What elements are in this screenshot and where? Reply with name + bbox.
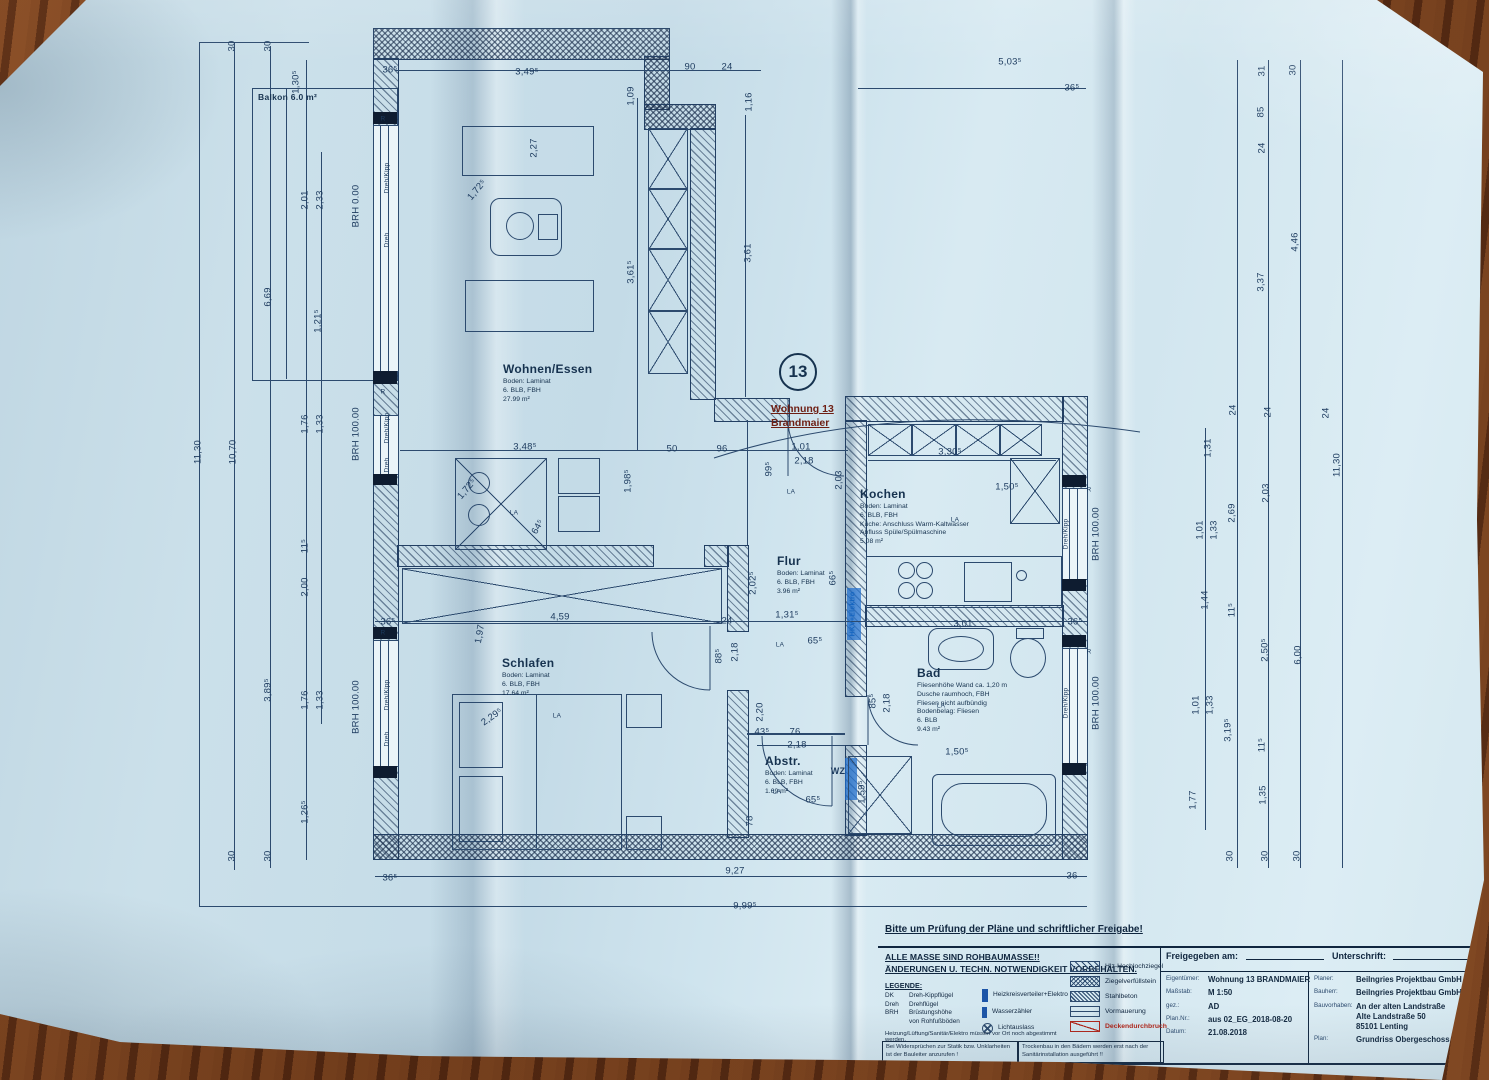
dimension-label: 1,01 bbox=[1195, 520, 1206, 539]
legend-abbr-row: BRHBrüstungshöhe von Rohfußböden bbox=[885, 1009, 960, 1026]
dimension-label: 85 bbox=[1256, 107, 1267, 118]
dimension-label: BRH 100.00 bbox=[1091, 507, 1102, 561]
legend-abbr-key: DK bbox=[885, 992, 909, 1001]
title-info-value: Beilngries Projektbau GmbH bbox=[1356, 988, 1462, 998]
room-name: Abstr. bbox=[765, 754, 813, 768]
dimension-label: 3,48⁵ bbox=[513, 442, 536, 453]
title-info-key: Eigentümer: bbox=[1166, 975, 1208, 985]
dimension-label: BRH 100.00 bbox=[351, 680, 362, 734]
dimension-label: 43⁵ bbox=[754, 727, 769, 738]
legend-hatch-label: Deckendurchbruch bbox=[1105, 1023, 1167, 1030]
dimension-label: 3,61⁵ bbox=[626, 260, 637, 283]
trockenbau-note: Trockenbau in den Bädern werden erst nac… bbox=[1018, 1041, 1164, 1063]
dimension-label: Dreh/Kipp bbox=[384, 413, 391, 444]
dimension-label: 11⁵ bbox=[300, 539, 311, 553]
legend-hatch-row: Deckendurchbruch bbox=[1070, 1021, 1167, 1032]
dimension-label: 36 bbox=[1067, 871, 1078, 882]
dimension-line bbox=[868, 460, 1056, 461]
dimension-label: 3,89⁵ bbox=[263, 678, 274, 701]
dimension-label: R bbox=[1087, 649, 1092, 656]
dimension-label: 3,61 bbox=[743, 243, 754, 262]
unterschrift-label: Unterschrift: bbox=[1332, 951, 1386, 961]
unit-label: Wohnung 13 Brandmaier bbox=[771, 402, 834, 430]
dimension-label: 30 bbox=[1292, 851, 1303, 862]
legend-title: LEGENDE: bbox=[885, 981, 922, 990]
title-info-value: 21.08.2018 bbox=[1208, 1028, 1247, 1038]
dimension-label: 1,01 bbox=[791, 442, 810, 453]
title-info-row: Bauvorhaben:An der alten Landstraße Alte… bbox=[1314, 1002, 1462, 1032]
title-info-right: Planer:Beilngries Projektbau GmbHBauherr… bbox=[1314, 975, 1462, 1049]
dimension-label: 2,20 bbox=[755, 702, 766, 721]
dimension-label: Dreh bbox=[384, 233, 391, 248]
dimension-label: 30 bbox=[1225, 851, 1236, 862]
dimension-label: 1,33 bbox=[1209, 520, 1220, 539]
dimension-label: 4,46 bbox=[1290, 232, 1301, 251]
legend-symbol-row: Wasserzähler bbox=[982, 1007, 1068, 1018]
dimension-label: 1,76 bbox=[300, 414, 311, 433]
freigegeben-label: Freigegeben am: bbox=[1166, 951, 1238, 961]
room-info: Boden: Laminat 6. BLB, FBH 27.99 m² bbox=[503, 378, 592, 404]
dimension-label: 2,69 bbox=[1227, 503, 1238, 522]
dimension-label: 1,33 bbox=[315, 690, 326, 709]
dimension-line bbox=[400, 450, 848, 451]
dimension-label: 1,26⁵ bbox=[300, 800, 311, 823]
room-name: Kochen bbox=[860, 487, 969, 501]
legend-abbr-key: BRH bbox=[885, 1009, 909, 1018]
title-info-row: Planer:Beilngries Projektbau GmbH bbox=[1314, 975, 1462, 985]
title-info-key: Plan: bbox=[1314, 1035, 1356, 1045]
legend-hatch-label: Vormauerung bbox=[1105, 1008, 1146, 1015]
dimension-label: 66⁵ bbox=[828, 570, 839, 585]
dimension-line bbox=[637, 98, 638, 450]
room-label: Wohnen/EssenBoden: Laminat 6. BLB, FBH 2… bbox=[503, 362, 592, 404]
dimension-line bbox=[321, 152, 322, 724]
dimension-line bbox=[199, 906, 1087, 907]
dimension-label: 2,01 bbox=[300, 190, 311, 209]
dimension-label: 24 bbox=[1228, 405, 1239, 416]
dimension-line bbox=[1237, 60, 1238, 868]
dimension-label: LA bbox=[773, 789, 781, 796]
title-info-key: Maßstab: bbox=[1166, 988, 1208, 998]
dimension-label: 11⁵ bbox=[1257, 738, 1268, 752]
dimension-line bbox=[1300, 60, 1301, 868]
dimension-label: LA bbox=[553, 713, 561, 720]
unit-number-circle: 13 bbox=[779, 353, 817, 391]
dimension-label: 76 bbox=[790, 727, 801, 738]
room-info: Boden: Laminat 6. BLB, FBH Küche: Anschl… bbox=[860, 503, 969, 547]
legend-abbreviations: DKDreh-KippflügelDrehDrehflügelBRHBrüstu… bbox=[885, 992, 960, 1027]
dimension-label: 11⁵ bbox=[1227, 603, 1238, 617]
hatch-swatch-icon bbox=[1070, 1006, 1100, 1017]
room-name: Balkon 6.0 m² bbox=[258, 92, 317, 102]
dimension-label: Dreh/Kipp bbox=[1063, 688, 1070, 719]
dimension-label: 2,02⁵ bbox=[748, 571, 759, 594]
dimension-label: 1,01 bbox=[1191, 695, 1202, 714]
room-label: BadFliesenhöhe Wand ca. 1,20 m Dusche ra… bbox=[917, 666, 1007, 735]
legend-symbol-row: Heizkreisverteiler+Elektro bbox=[982, 989, 1068, 1002]
dimension-line bbox=[199, 42, 200, 906]
dimension-label: 1,30⁵ bbox=[291, 70, 302, 93]
title-info-row: Bauherr:Beilngries Projektbau GmbH bbox=[1314, 988, 1462, 998]
dimension-label: BRH 100.00 bbox=[351, 407, 362, 461]
dimension-label: Dreh bbox=[384, 732, 391, 747]
dimension-label: 1,09 bbox=[626, 86, 637, 105]
room-name: Wohnen/Essen bbox=[503, 362, 592, 376]
dimension-label: 36⁵ bbox=[1064, 83, 1079, 94]
legend-hatch-row: Hlz-Hochlochziegel bbox=[1070, 961, 1167, 972]
dimension-label: 1,44 bbox=[1200, 590, 1211, 609]
room-label: FlurBoden: Laminat 6. BLB, FBH 3.96 m² bbox=[777, 554, 825, 596]
title-info-value: M 1:50 bbox=[1208, 988, 1232, 998]
dimension-label: R bbox=[381, 116, 386, 123]
legend-symbol-label: Wasserzähler bbox=[992, 1008, 1032, 1017]
legend-abbr-key: Dreh bbox=[885, 1001, 909, 1010]
dimension-label: 78 bbox=[745, 816, 756, 827]
hatch-swatch-icon bbox=[1070, 991, 1100, 1002]
dimension-label: 2,03 bbox=[1261, 483, 1272, 502]
dimension-label: 24 bbox=[1263, 407, 1274, 418]
signature-line bbox=[1393, 951, 1471, 960]
dimension-label: 1,31 bbox=[1203, 438, 1214, 457]
dimension-label: 6,00 bbox=[1293, 645, 1304, 664]
dimension-label: 24 bbox=[1257, 143, 1268, 154]
room-info: Boden: Laminat 6. BLB, FBH 3.96 m² bbox=[777, 570, 825, 596]
dimension-label: BRH 100.00 bbox=[1091, 676, 1102, 730]
dimension-label: R bbox=[1087, 487, 1092, 494]
dimension-label: 50 bbox=[667, 444, 678, 455]
dimension-label: Dreh/Kipp bbox=[384, 680, 391, 711]
title-info-row: Datum:21.08.2018 bbox=[1166, 1028, 1310, 1038]
hatch-swatch-icon bbox=[1070, 1021, 1100, 1032]
dimension-label: 9,27 bbox=[725, 866, 744, 877]
dimension-label: 96 bbox=[717, 444, 728, 455]
dimension-label: 1,33 bbox=[315, 414, 326, 433]
title-info-value: Beilngries Projektbau GmbH bbox=[1356, 975, 1462, 985]
dimension-label: 9,99⁵ bbox=[733, 901, 756, 912]
title-info-key: Datum: bbox=[1166, 1028, 1208, 1038]
dimension-label: 1,21⁵ bbox=[313, 309, 324, 332]
dimension-label: 2,18 bbox=[794, 456, 813, 467]
dimension-label: 1,98⁵ bbox=[623, 469, 634, 492]
review-note: Bitte um Prüfung der Pläne und schriftli… bbox=[885, 924, 1143, 935]
title-block: Bitte um Prüfung der Pläne und schriftli… bbox=[878, 921, 1474, 1065]
dimension-label: 36⁵ bbox=[1067, 617, 1082, 628]
dimension-label: 11,30 bbox=[1332, 453, 1343, 477]
title-info-key: Bauvorhaben: bbox=[1314, 1002, 1356, 1032]
legend-abbr-value: Brüstungshöhe von Rohfußböden bbox=[909, 1009, 960, 1026]
title-info-value: An der alten Landstraße Alte Landstraße … bbox=[1356, 1002, 1445, 1032]
title-info-key: gez.: bbox=[1166, 1002, 1208, 1012]
dimension-label: LA bbox=[787, 489, 795, 496]
title-info-value: AD bbox=[1208, 1002, 1219, 1012]
dimension-label: 6,69 bbox=[263, 287, 274, 306]
paper-sheet: 13 Wohnung 13 Brandmaier Balkon 6.0 m²Wo… bbox=[0, 0, 1489, 1080]
hkv-symbol-icon bbox=[982, 989, 988, 1002]
dimension-label: Dreh bbox=[384, 458, 391, 473]
dimension-label: 85⁵ bbox=[868, 693, 879, 708]
dimension-label: 3,01 bbox=[953, 619, 972, 630]
dimension-label: 24 bbox=[1321, 408, 1332, 419]
title-info-value: aus 02_EG_2018-08-20 bbox=[1208, 1015, 1292, 1025]
dimension-label: 1,76 bbox=[300, 690, 311, 709]
title-info-key: Plan.Nr.: bbox=[1166, 1015, 1208, 1025]
dimension-line bbox=[395, 70, 761, 71]
room-name: Bad bbox=[917, 666, 1007, 680]
hatch-swatch-icon bbox=[1070, 961, 1100, 972]
dimension-label: 1,35 bbox=[1258, 785, 1269, 804]
dimension-label: 2,50⁵ bbox=[1260, 638, 1271, 661]
dimension-line bbox=[306, 60, 307, 860]
legend-symbol-label: Heizkreisverteiler+Elektro bbox=[993, 991, 1068, 1000]
legend-hatches: Hlz-HochlochziegelZiegelverfüllsteinStah… bbox=[1070, 961, 1167, 1036]
statik-note: Bei Widersprüchen zur Statik bzw. Unklar… bbox=[882, 1041, 1018, 1063]
dimension-label: 36⁵ bbox=[382, 65, 397, 76]
dimension-label: 2,33 bbox=[315, 190, 326, 209]
dimension-label: Dreh/Kipp bbox=[1063, 519, 1070, 550]
title-info-left: Eigentümer:Wohnung 13 BRANDMAIERMaßstab:… bbox=[1166, 975, 1310, 1042]
dimension-label: 65⁵ bbox=[807, 636, 822, 647]
title-info-row: Plan:Grundriss Obergeschoss bbox=[1314, 1035, 1462, 1045]
legend-hatch-row: Stahlbeton bbox=[1070, 991, 1167, 1002]
hatch-swatch-icon bbox=[1070, 976, 1100, 987]
dimension-label: 2,03 bbox=[834, 470, 845, 489]
dimension-label: 10,70 bbox=[228, 440, 239, 465]
dimension-label: 5,03⁵ bbox=[998, 57, 1021, 68]
divider bbox=[878, 946, 1474, 948]
dimension-label: 65⁵ bbox=[805, 795, 820, 806]
dimension-line bbox=[1268, 60, 1269, 868]
dimension-label: 30 bbox=[227, 851, 238, 862]
dimension-label: 36⁵ bbox=[380, 617, 395, 628]
legend-abbr-value: Dreh-Kippflügel bbox=[909, 992, 953, 1001]
dimension-label: WZ bbox=[831, 766, 845, 776]
dimension-label: 90 bbox=[685, 62, 696, 73]
dimension-label: 1,31⁵ bbox=[775, 610, 798, 621]
title-info-value: Wohnung 13 BRANDMAIER bbox=[1208, 975, 1310, 985]
dimension-label: 30 bbox=[227, 41, 238, 52]
dimension-label: 1,59⁵ bbox=[857, 780, 868, 803]
dimension-label: 88⁵ bbox=[714, 648, 725, 663]
legend-hatch-row: Vormauerung bbox=[1070, 1006, 1167, 1017]
legend-abbr-row: DrehDrehflügel bbox=[885, 1001, 960, 1010]
legend-abbr-row: DKDreh-Kippflügel bbox=[885, 992, 960, 1001]
legend-abbr-value: Drehflügel bbox=[909, 1001, 938, 1010]
dimension-label: 3,49⁵ bbox=[515, 67, 538, 78]
door-arc bbox=[652, 626, 710, 690]
dimension-label: 30 bbox=[1288, 65, 1299, 76]
dimension-label: 24 bbox=[722, 616, 733, 627]
dimension-label: 4,59 bbox=[550, 612, 569, 623]
title-info-key: Bauherr: bbox=[1314, 988, 1356, 998]
dimension-label: 3,37 bbox=[1256, 272, 1267, 291]
dimension-label: R bbox=[381, 630, 386, 637]
dimension-label: 30 bbox=[263, 851, 274, 862]
title-info-row: Eigentümer:Wohnung 13 BRANDMAIER bbox=[1166, 975, 1310, 985]
dimension-label: 30 bbox=[263, 41, 274, 52]
dimension-label: 30 bbox=[1260, 851, 1271, 862]
dimension-label: HKV+Elektro bbox=[850, 592, 857, 637]
dimension-label: 1,50⁵ bbox=[945, 747, 968, 758]
dimension-label: 3,19⁵ bbox=[1223, 718, 1234, 741]
dimension-label: 24 bbox=[722, 62, 733, 73]
legend-hatch-label: Hlz-Hochlochziegel bbox=[1105, 963, 1163, 970]
dimension-label: 1,77 bbox=[1188, 790, 1199, 809]
dimension-label: Dreh/Kipp bbox=[384, 163, 391, 194]
photo-of-floor-plan: 13 Wohnung 13 Brandmaier Balkon 6.0 m²Wo… bbox=[0, 0, 1489, 1080]
dimension-line bbox=[270, 46, 271, 868]
title-info-row: gez.:AD bbox=[1166, 1002, 1310, 1012]
dimension-label: 2,18 bbox=[882, 693, 893, 712]
dimension-label: 1,50⁵ bbox=[995, 482, 1018, 493]
dimension-label: 1,16 bbox=[744, 92, 755, 111]
title-info-key: Planer: bbox=[1314, 975, 1356, 985]
dimension-line bbox=[858, 88, 1086, 89]
title-info-value: Grundriss Obergeschoss bbox=[1356, 1035, 1450, 1045]
divider bbox=[878, 1063, 1474, 1065]
wz-symbol-icon bbox=[982, 1007, 987, 1018]
room-label: SchlafenBoden: Laminat 6. BLB, FBH 17.64… bbox=[502, 656, 554, 698]
dimension-label: LA bbox=[510, 510, 518, 517]
room-info: Fliesenhöhe Wand ca. 1,20 m Dusche raumh… bbox=[917, 682, 1007, 735]
dimension-label: 2,27 bbox=[529, 138, 540, 157]
dimension-label: 31 bbox=[1257, 66, 1268, 77]
dimension-label: BRH 0.00 bbox=[351, 185, 362, 228]
legend-hatch-row: Ziegelverfüllstein bbox=[1070, 976, 1167, 987]
room-label: Balkon 6.0 m² bbox=[258, 92, 317, 102]
legend-hatch-label: Stahlbeton bbox=[1105, 993, 1138, 1000]
dimension-label: LA bbox=[951, 517, 959, 524]
dimension-line bbox=[199, 42, 309, 43]
signature-line bbox=[1246, 951, 1324, 960]
title-info-row: Maßstab:M 1:50 bbox=[1166, 988, 1310, 998]
dimension-line bbox=[1205, 428, 1206, 830]
divider bbox=[1160, 971, 1474, 972]
dimension-label: 3,30⁵ bbox=[938, 447, 961, 458]
dimension-label: 1,33 bbox=[1205, 695, 1216, 714]
legend-hatch-label: Ziegelverfüllstein bbox=[1105, 978, 1156, 985]
dimension-label: 2,18 bbox=[787, 740, 806, 751]
title-info-row: Plan.Nr.:aus 02_EG_2018-08-20 bbox=[1166, 1015, 1310, 1025]
dimension-label: 2,00 bbox=[300, 577, 311, 596]
room-name: Schlafen bbox=[502, 656, 554, 670]
dimension-label: LA bbox=[937, 703, 945, 710]
dimension-label: R bbox=[381, 389, 386, 396]
room-info: Boden: Laminat 6. BLB, FBH 17.64 m² bbox=[502, 672, 554, 698]
dimension-label: 99⁵ bbox=[764, 461, 775, 476]
dimension-label: LA bbox=[776, 642, 784, 649]
dimension-label: 11,30 bbox=[193, 440, 204, 464]
room-name: Flur bbox=[777, 554, 825, 568]
dimension-label: 36⁵ bbox=[382, 873, 397, 884]
dimension-label: 2,18 bbox=[730, 642, 741, 661]
